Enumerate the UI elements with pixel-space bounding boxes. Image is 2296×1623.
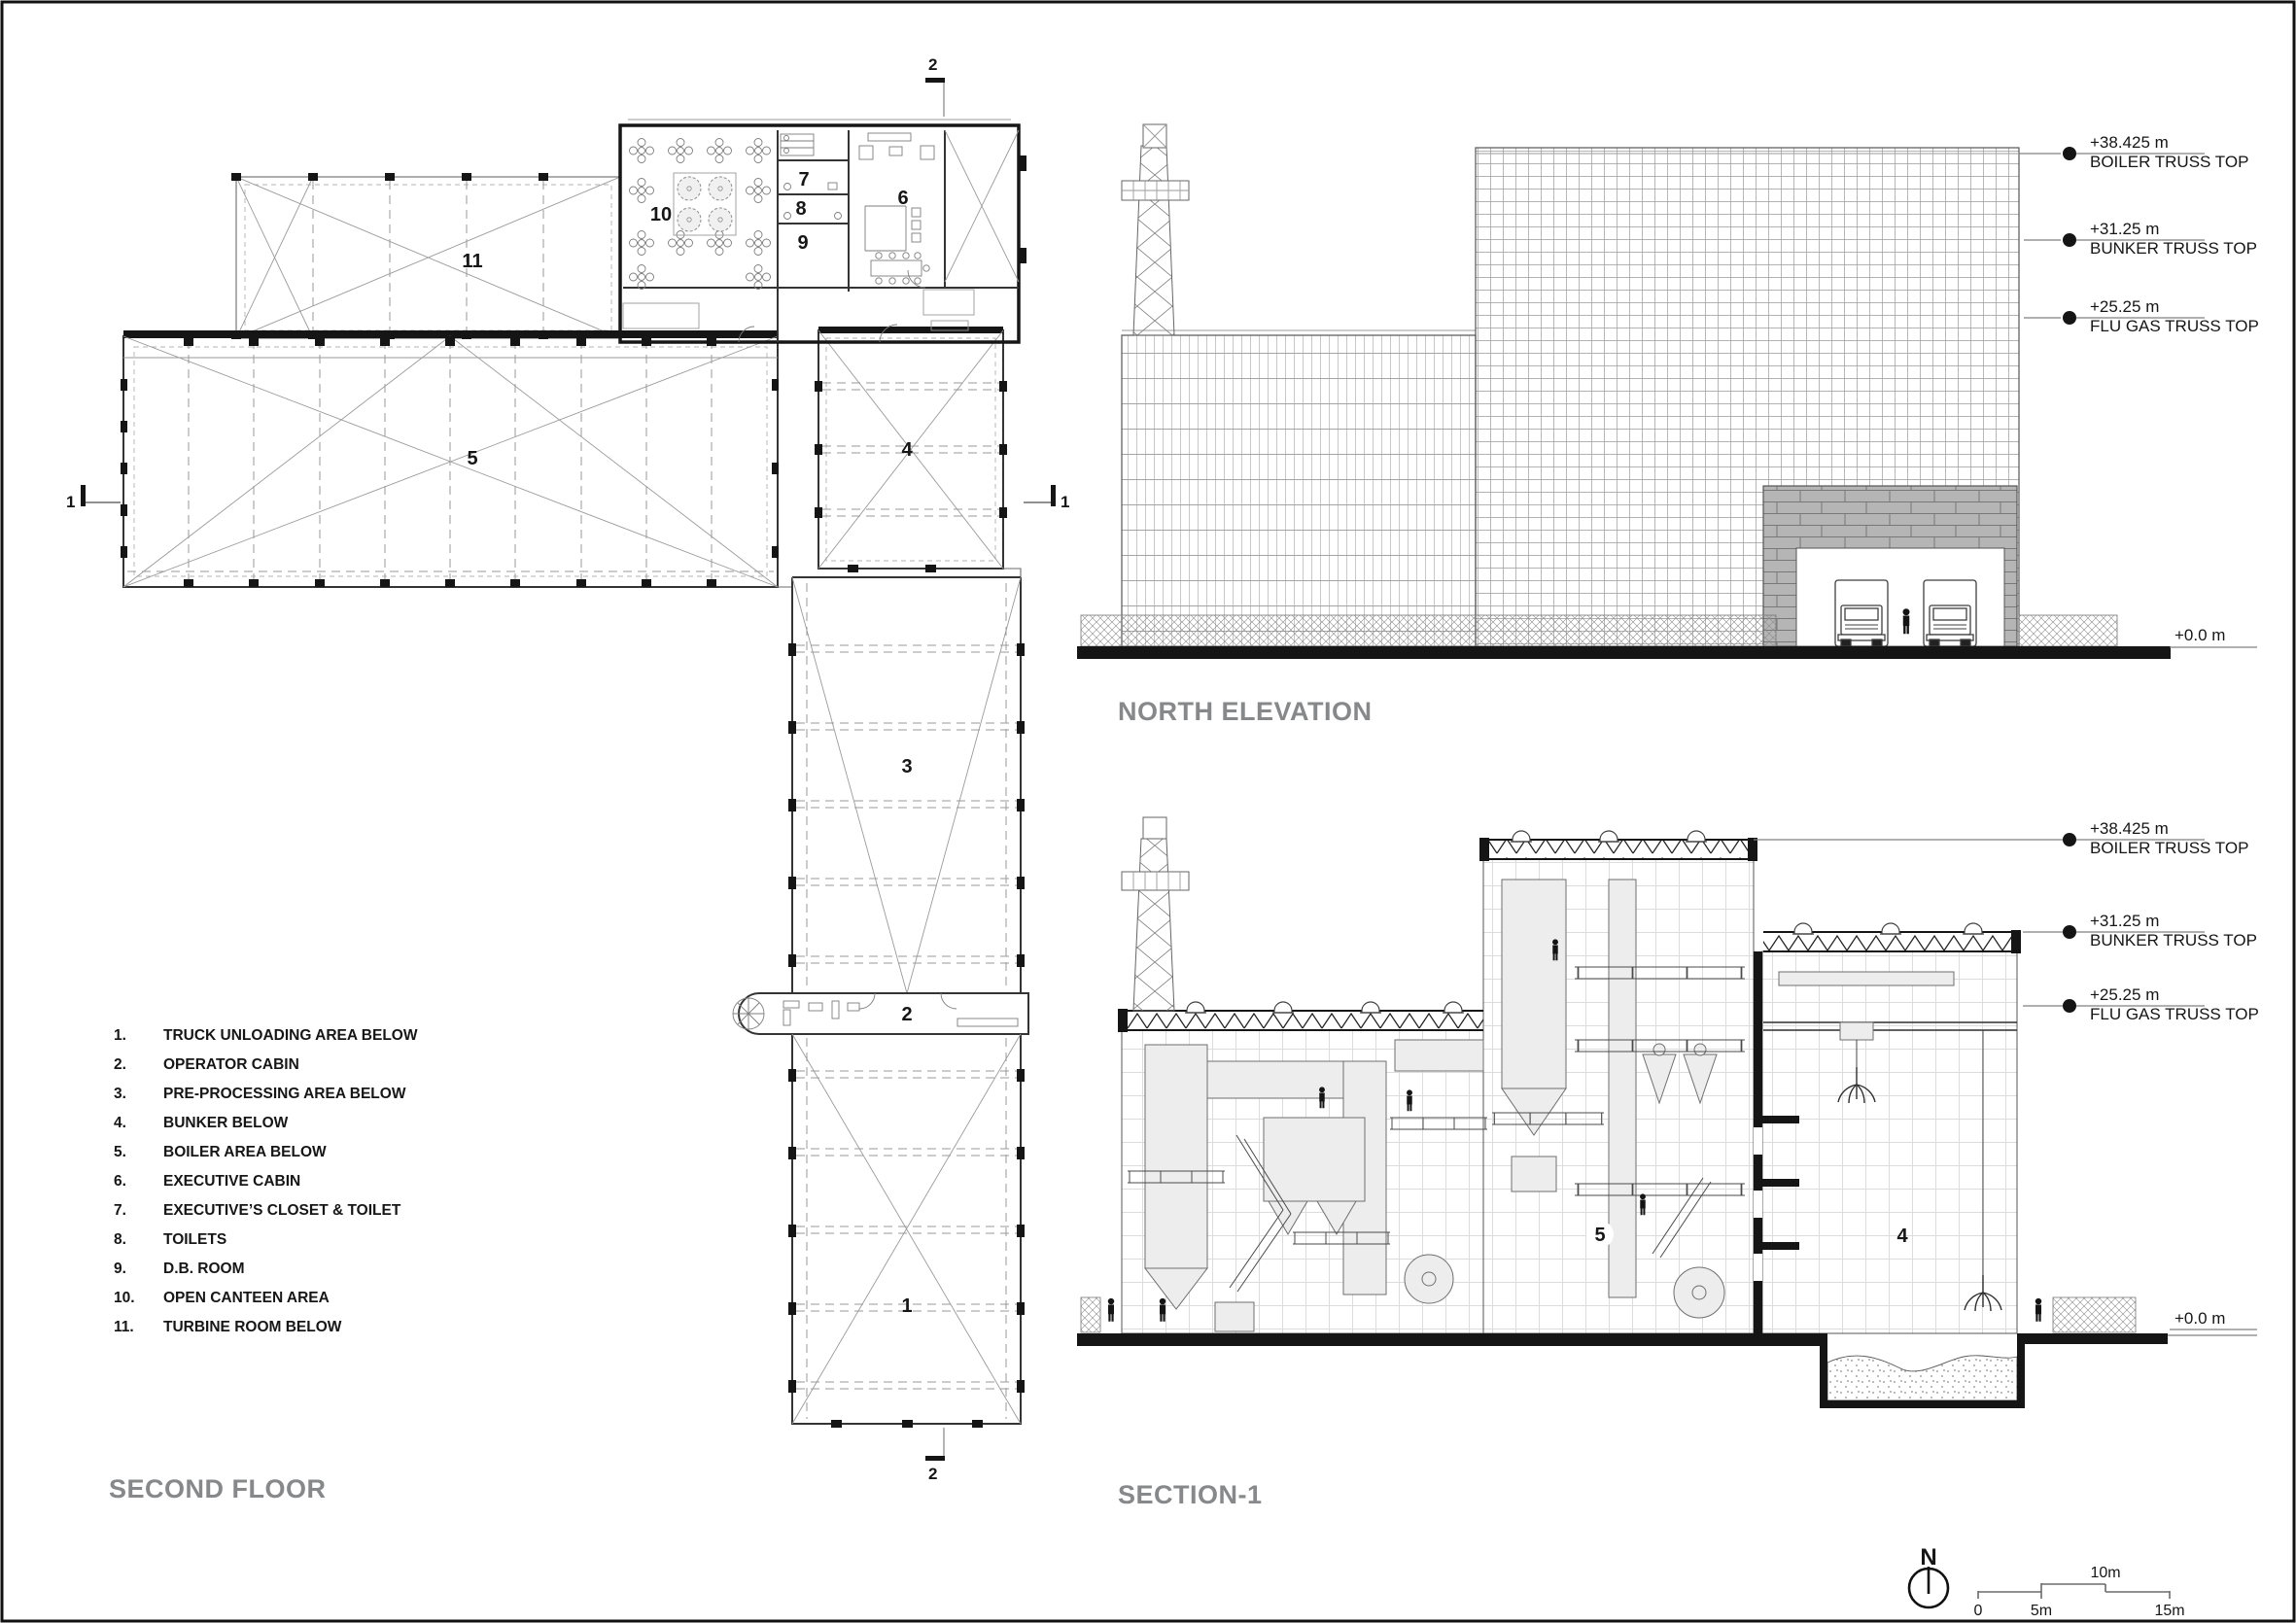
legend-num: 7. — [114, 1202, 126, 1219]
drawing-sheet: 1 2 3 4 5 6 7 8 9 10 11 1 1 2 — [0, 0, 2296, 1623]
section-marker-2-bottom: 2 — [925, 1428, 945, 1483]
level-value: +25.25 m — [2090, 297, 2159, 316]
truss-bunker — [1763, 923, 2021, 953]
legend-num: 3. — [114, 1086, 126, 1102]
ground-level-label: +0.0 m — [2174, 1309, 2225, 1328]
section-number-4: 4 — [1896, 1226, 1908, 1247]
legend-num: 1. — [114, 1027, 126, 1044]
ground-line — [1077, 1333, 1820, 1346]
area-number-8: 8 — [795, 198, 806, 220]
gabion-wall — [2019, 615, 2117, 646]
marker-label: 2 — [928, 55, 937, 74]
gabion-wall — [1081, 1297, 1100, 1332]
legend-label: BUNKER BELOW — [163, 1115, 289, 1131]
level-name: BUNKER TRUSS TOP — [2090, 239, 2257, 258]
plan-area-2-operator-cabin — [733, 993, 1028, 1034]
legend-label: EXECUTIVE’S CLOSET & TOILET — [163, 1202, 401, 1219]
level-name: BUNKER TRUSS TOP — [2090, 931, 2257, 950]
legend-num: 5. — [114, 1144, 126, 1160]
section-bunker-block — [1762, 951, 2017, 1333]
legend-num: 9. — [114, 1260, 126, 1277]
scale-bar: 0 5m 10m 15m — [1974, 1565, 2185, 1619]
area-number-2: 2 — [901, 1004, 912, 1025]
level-name: BOILER TRUSS TOP — [2090, 839, 2248, 857]
scale-tick-15: 15m — [2154, 1603, 2184, 1619]
legend: 1.TRUCK UNLOADING AREA BELOW 2.OPERATOR … — [114, 1027, 418, 1335]
plan-area-4-bunker — [778, 290, 1021, 587]
north-arrow-icon: N — [1909, 1544, 1948, 1607]
level-name: FLU GAS TRUSS TOP — [2090, 317, 2259, 335]
scale-tick-5: 5m — [2031, 1603, 2052, 1619]
gabion-wall — [1081, 615, 1776, 646]
area-number-6: 6 — [897, 188, 908, 209]
scale-tick-0: 0 — [1974, 1603, 1983, 1619]
legend-num: 2. — [114, 1056, 126, 1073]
area-number-4: 4 — [901, 439, 913, 461]
legend-label: TURBINE ROOM BELOW — [163, 1319, 342, 1335]
section-chimney — [1122, 817, 1189, 1011]
elevation-chimney — [1122, 124, 1189, 335]
level-name: FLU GAS TRUSS TOP — [2090, 1005, 2259, 1023]
shaft-cross — [945, 130, 1019, 282]
legend-label: D.B. ROOM — [163, 1260, 245, 1277]
level-value: +38.425 m — [2090, 133, 2169, 152]
elevation-main-building — [1122, 335, 1476, 646]
executive-furniture — [859, 133, 934, 288]
level-name: BOILER TRUSS TOP — [2090, 153, 2248, 171]
area-number-5: 5 — [467, 448, 477, 469]
legend-num: 11. — [114, 1319, 134, 1335]
level-value: +31.25 m — [2090, 220, 2159, 238]
section-marker-1-left: 1 — [66, 485, 121, 511]
elevation-level-markers: +38.425 m BOILER TRUSS TOP +31.25 m BUNK… — [2019, 133, 2259, 647]
scale-tick-10: 10m — [2090, 1565, 2120, 1581]
bunker-pit — [1820, 1333, 2025, 1408]
area-number-10: 10 — [650, 204, 672, 225]
architectural-drawing: 1 2 3 4 5 6 7 8 9 10 11 1 1 2 — [0, 0, 2296, 1623]
plan-title: SECOND FLOOR — [109, 1474, 327, 1503]
level-value: +38.425 m — [2090, 819, 2169, 838]
ground-line — [2025, 1333, 2168, 1344]
canteen-planter — [674, 173, 736, 235]
plan-top-block — [620, 120, 1026, 342]
marker-label: 1 — [1061, 493, 1069, 511]
truss-boiler — [1479, 831, 1757, 861]
marker-label: 2 — [928, 1465, 937, 1483]
legend-label: OPEN CANTEEN AREA — [163, 1290, 330, 1306]
section-marker-1-right: 1 — [1024, 485, 1069, 511]
level-value: +25.25 m — [2090, 985, 2159, 1004]
plan-area-3-preprocessing — [788, 577, 1025, 993]
toilet-fixtures — [784, 183, 842, 220]
area-number-9: 9 — [797, 232, 808, 254]
plan-area-11-turbine-room — [231, 173, 620, 339]
truck — [1835, 580, 1888, 646]
legend-num: 6. — [114, 1173, 126, 1190]
stair — [923, 290, 974, 315]
ground-level-label: +0.0 m — [2174, 626, 2225, 644]
area-number-3: 3 — [901, 756, 912, 777]
truck — [1924, 580, 1976, 646]
legend-label: OPERATOR CABIN — [163, 1056, 299, 1073]
legend-num: 4. — [114, 1115, 126, 1131]
kitchenette — [781, 134, 814, 155]
legend-num: 10. — [114, 1290, 135, 1306]
level-value: +31.25 m — [2090, 912, 2159, 930]
legend-label: TRUCK UNLOADING AREA BELOW — [163, 1027, 418, 1044]
legend-label: EXECUTIVE CABIN — [163, 1173, 300, 1190]
floor-plan: 1 2 3 4 5 6 7 8 9 10 11 1 1 2 — [66, 55, 1069, 1503]
ground-line — [1077, 646, 2171, 659]
legend-label: PRE-PROCESSING AREA BELOW — [163, 1086, 406, 1102]
area-number-7: 7 — [798, 169, 809, 190]
spiral-stair — [733, 998, 764, 1029]
legend-label: BOILER AREA BELOW — [163, 1144, 327, 1160]
section-marker-2-top: 2 — [925, 55, 945, 117]
marker-label: 1 — [66, 493, 75, 511]
area-number-1: 1 — [901, 1295, 912, 1317]
elevation-title: NORTH ELEVATION — [1118, 697, 1373, 726]
elevation-truck-portal — [1763, 486, 2017, 646]
north-label: N — [1920, 1544, 1936, 1571]
plan-area-1-truck-unloading — [788, 1034, 1025, 1428]
legend-label: TOILETS — [163, 1231, 226, 1248]
section-1: 5 4 +38.425 m BOILER TRUSS TOP +31.25 m … — [1077, 817, 2259, 1509]
section-number-5: 5 — [1594, 1225, 1605, 1246]
north-elevation: +38.425 m BOILER TRUSS TOP +31.25 m BUNK… — [1077, 124, 2259, 726]
gabion-wall — [2053, 1297, 2136, 1332]
section-title: SECTION-1 — [1118, 1480, 1263, 1509]
area-number-11: 11 — [462, 251, 482, 272]
stair — [623, 303, 699, 328]
plan-area-5-boiler-area — [121, 330, 779, 587]
legend-num: 8. — [114, 1231, 126, 1248]
